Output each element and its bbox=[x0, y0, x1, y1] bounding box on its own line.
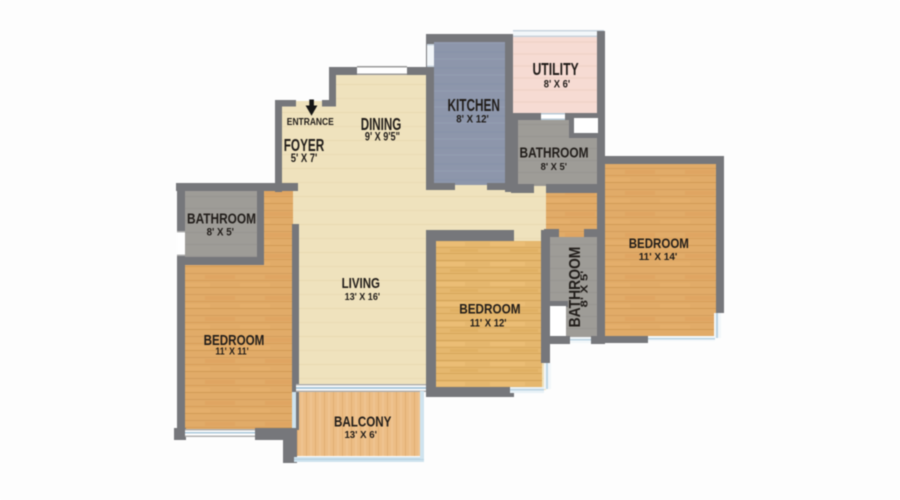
svg-text:8' X 12': 8' X 12' bbox=[456, 114, 489, 126]
svg-text:BATHROOM: BATHROOM bbox=[520, 145, 589, 161]
svg-text:UTILITY: UTILITY bbox=[532, 59, 579, 79]
svg-text:8' X 6': 8' X 6' bbox=[544, 79, 571, 91]
svg-text:9' X 9'5": 9' X 9'5" bbox=[365, 131, 400, 144]
svg-text:11' X 12': 11' X 12' bbox=[470, 318, 507, 330]
svg-text:BATHROOM: BATHROOM bbox=[187, 211, 256, 227]
svg-text:11' X 11': 11' X 11' bbox=[215, 346, 248, 357]
svg-text:11' X 14': 11' X 14' bbox=[639, 252, 678, 263]
svg-text:8' X 5': 8' X 5' bbox=[207, 227, 235, 239]
svg-text:13' X 6': 13' X 6' bbox=[344, 430, 377, 441]
svg-text:8' X 5': 8' X 5' bbox=[541, 162, 567, 173]
svg-text:13' X 16': 13' X 16' bbox=[345, 292, 380, 303]
svg-text:KITCHEN: KITCHEN bbox=[447, 95, 500, 115]
svg-text:8' X 5': 8' X 5' bbox=[580, 271, 591, 308]
svg-text:BALCONY: BALCONY bbox=[334, 415, 392, 431]
svg-text:BEDROOM: BEDROOM bbox=[629, 235, 689, 251]
svg-text:5' X 7': 5' X 7' bbox=[291, 152, 318, 165]
svg-text:BEDROOM: BEDROOM bbox=[459, 302, 520, 317]
svg-text:ENTRANCE: ENTRANCE bbox=[287, 117, 334, 128]
svg-text:LIVING: LIVING bbox=[342, 275, 380, 292]
